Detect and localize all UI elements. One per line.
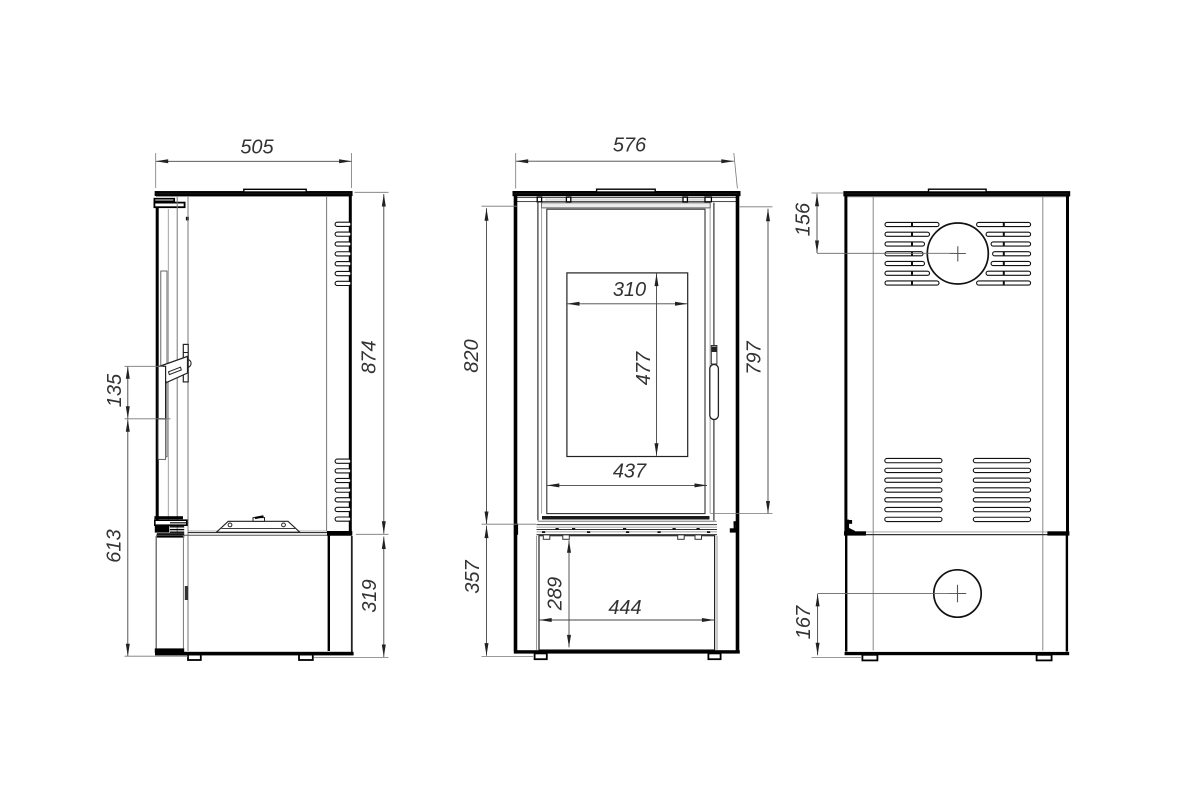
- svg-text:505: 505: [240, 137, 274, 159]
- svg-text:357: 357: [462, 559, 484, 593]
- svg-text:444: 444: [608, 597, 641, 619]
- svg-text:477: 477: [633, 351, 655, 385]
- svg-text:310: 310: [613, 279, 646, 301]
- svg-text:167: 167: [793, 605, 815, 639]
- svg-text:437: 437: [613, 461, 647, 483]
- svg-text:820: 820: [461, 339, 483, 372]
- svg-text:576: 576: [613, 135, 647, 157]
- svg-text:135: 135: [104, 373, 126, 407]
- svg-text:289: 289: [545, 577, 567, 611]
- svg-text:319: 319: [359, 579, 381, 612]
- svg-text:874: 874: [359, 340, 381, 373]
- svg-text:156: 156: [793, 202, 815, 236]
- svg-text:613: 613: [104, 529, 126, 562]
- svg-text:797: 797: [744, 340, 766, 374]
